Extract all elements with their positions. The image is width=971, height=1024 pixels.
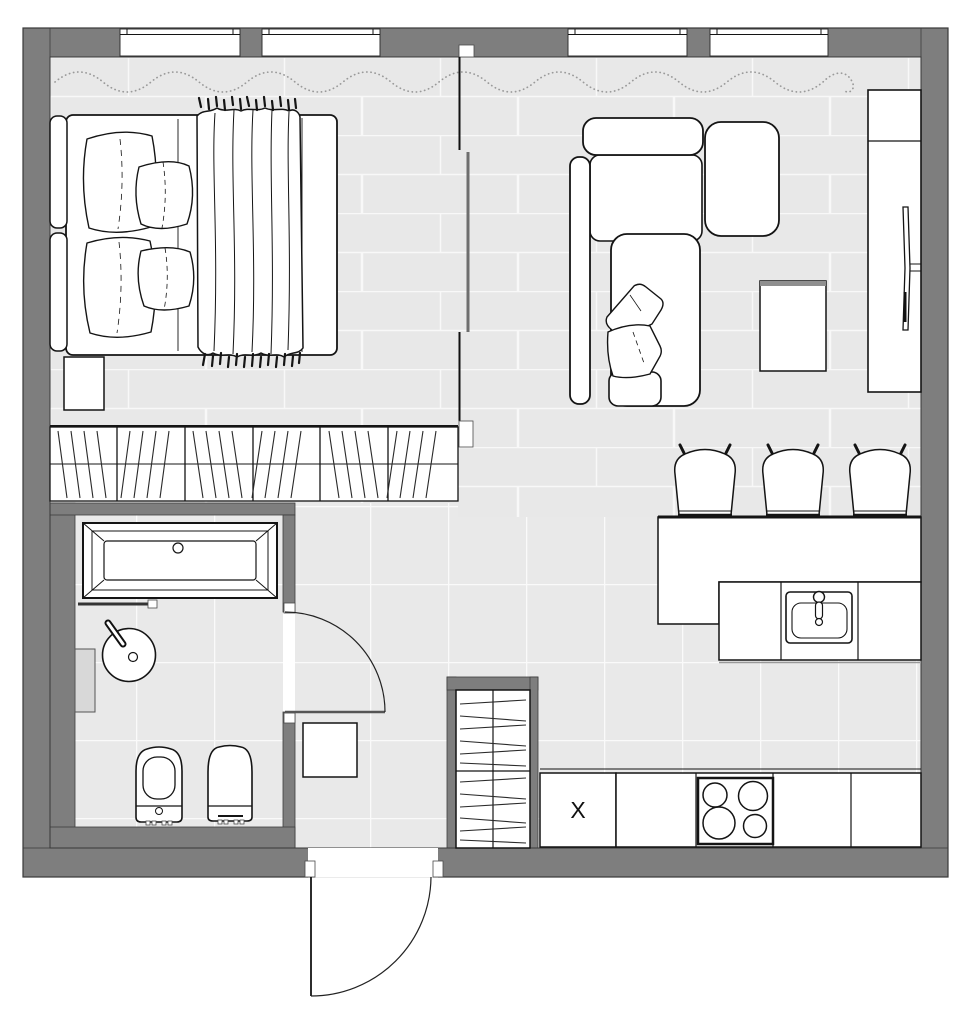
floor-plan-drawing: X <box>0 0 971 1024</box>
sofa-armrest <box>570 157 590 404</box>
wall-shelf <box>75 649 95 712</box>
blanket-with-fringe <box>197 97 303 367</box>
basin-drain <box>129 653 138 662</box>
entrance-closet <box>456 690 530 848</box>
closet-wall-top <box>447 677 538 690</box>
sofa-back-cushion <box>583 118 703 155</box>
floor-plan-page: X <box>0 0 971 1024</box>
window-1 <box>120 29 240 56</box>
mixer-tap <box>814 592 825 603</box>
closet-wall-right <box>530 677 538 848</box>
bar-stool-3 <box>850 445 911 515</box>
bathtub <box>83 523 277 598</box>
nightstand <box>64 357 104 410</box>
cooktop <box>698 778 773 844</box>
bathroom-wall-left <box>50 503 75 848</box>
tv-unit <box>868 90 921 392</box>
bar-stools <box>675 445 911 515</box>
double-bed <box>50 97 337 367</box>
wall-hung-toilet <box>136 747 182 825</box>
partition-pocket-top <box>459 45 474 57</box>
window-4 <box>710 29 828 56</box>
bathroom-wall-right-upper <box>283 515 295 612</box>
closet-wall-left <box>447 677 456 848</box>
window-3 <box>568 29 687 56</box>
bidet <box>208 746 252 825</box>
bar-stool-2 <box>763 445 824 515</box>
bar-stool-1 <box>675 445 736 515</box>
wall-bottom <box>23 848 948 877</box>
sofa-chaise <box>705 122 779 236</box>
headboard-cushion-bottom <box>50 233 67 351</box>
sofa-seat-upper <box>590 155 702 241</box>
bathroom-wall-bottom <box>50 827 295 848</box>
tv-speaker-bar <box>904 292 907 322</box>
entrance-door-swing <box>311 877 431 996</box>
wall-left <box>23 28 50 877</box>
headboard-cushion-top <box>50 116 67 228</box>
entrance-door <box>305 861 443 996</box>
wall-right <box>921 28 948 877</box>
partition-pocket-bottom <box>459 421 473 447</box>
appliance-x-label: X <box>570 797 585 823</box>
kitchen-sink <box>786 592 852 644</box>
coffee-table <box>760 281 826 371</box>
shoe-cabinet <box>303 723 357 777</box>
tv-cabinet <box>868 90 921 392</box>
window-2 <box>262 29 380 56</box>
entrance-opening <box>308 848 438 878</box>
bedroom-wardrobe <box>50 426 458 501</box>
coffee-table-edge <box>760 281 826 286</box>
kitchen-row: X <box>540 769 921 847</box>
bathroom-wall-top <box>50 503 295 515</box>
tub-drain <box>173 543 183 553</box>
